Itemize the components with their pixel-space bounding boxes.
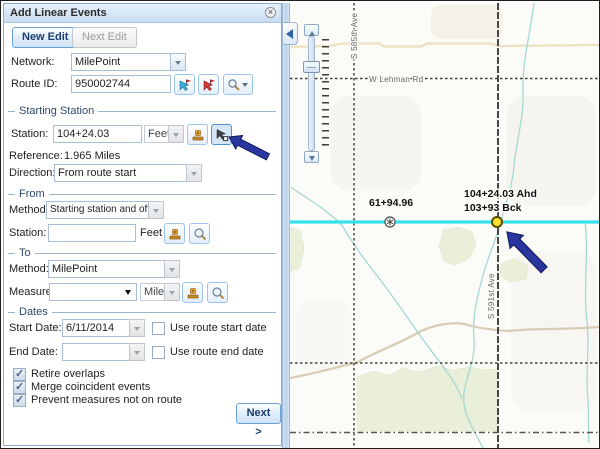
network-dropdown-trigger[interactable] [170, 53, 186, 71]
to-method-trigger[interactable] [164, 260, 180, 278]
select-route-icon [178, 78, 192, 92]
collapse-panel-tab[interactable] [283, 22, 298, 45]
from-method-label: Method: [9, 204, 49, 216]
from-search-icon [193, 227, 207, 241]
from-station-locator-icon [168, 227, 182, 241]
use-route-start-checkbox[interactable] [152, 322, 165, 335]
from-method-trigger[interactable] [148, 201, 164, 219]
edit-buttons-row: New Edit Next Edit [4, 27, 281, 49]
start-date-input[interactable]: 6/11/2014 [62, 319, 130, 337]
reference-label: Reference: [9, 150, 63, 162]
to-method-label: Method: [9, 263, 49, 275]
measure-locator-button[interactable] [182, 282, 203, 303]
end-date-input[interactable] [62, 343, 130, 361]
use-route-end-label: Use route end date [170, 346, 264, 358]
panel-splitter[interactable] [282, 3, 290, 448]
map-canvas: S 585th Ave W Lehman Rd S 591st Ave 61+9… [290, 3, 599, 448]
station-locator-button[interactable] [187, 124, 208, 145]
route-search-button[interactable] [223, 74, 253, 95]
zoom-slider-track[interactable] [308, 36, 315, 151]
from-method-row: Method: Starting station and offset [4, 201, 281, 221]
direction-dropdown-trigger[interactable] [186, 164, 202, 182]
terrain-patches [296, 5, 597, 411]
end-date-label: End Date: [9, 346, 58, 358]
screenshot-frame: Add Linear Events × New Edit Next Edit N… [0, 0, 600, 449]
direction-row: Direction: From route start [4, 164, 281, 184]
road-v2-label: S 591st Ave [487, 273, 496, 319]
pick-station-on-map-button[interactable] [211, 124, 232, 145]
map-viewport[interactable]: S 585th Ave W Lehman Rd S 591st Ave 61+9… [290, 3, 599, 448]
end-date-trigger[interactable] [129, 343, 145, 361]
zoom-out-button[interactable] [304, 151, 319, 163]
panel-title: Add Linear Events [10, 7, 107, 19]
vegetation-large [357, 366, 497, 431]
measure-units-select[interactable]: Miles [140, 283, 165, 301]
clear-route-button[interactable] [198, 74, 219, 95]
start-date-row: Start Date: 6/11/2014 Use route start da… [4, 319, 281, 339]
measure-caret-icon[interactable] [125, 290, 131, 298]
selected-point-label-line2: 103+93 Bck [464, 202, 522, 214]
from-station-input[interactable] [48, 224, 136, 242]
start-date-trigger[interactable] [129, 319, 145, 337]
vegetation-edge [291, 227, 304, 272]
end-date-row: End Date: Use route end date [4, 343, 281, 363]
new-edit-button[interactable]: New Edit [12, 27, 78, 48]
use-route-start-label: Use route start date [170, 322, 267, 334]
station-units-trigger[interactable] [168, 125, 184, 143]
add-linear-events-panel: Add Linear Events × New Edit Next Edit N… [3, 3, 282, 446]
option-row: Retire overlaps [4, 368, 281, 382]
retire-overlaps-label: Retire overlaps [31, 368, 105, 380]
selected-station-point[interactable] [492, 217, 502, 227]
direction-label: Direction: [9, 167, 55, 179]
station-marker-label: 61+94.96 [369, 197, 413, 209]
reference-value: 1.965 Miles [64, 150, 120, 162]
selected-point-label-line1: 104+24.03 Ahd [464, 188, 537, 200]
select-route-button[interactable] [174, 74, 195, 95]
network-row: Network: MilePoint [4, 53, 281, 73]
zoom-slider-thumb[interactable] [303, 61, 320, 73]
route-id-input[interactable]: 950002744 [71, 75, 171, 93]
measure-label: Measure: [9, 286, 55, 298]
merge-coincident-label: Merge coincident events [31, 381, 150, 393]
section-starting-station: Starting Station [8, 105, 276, 117]
network-select[interactable]: MilePoint [71, 53, 171, 71]
from-station-search-button[interactable] [189, 223, 210, 244]
station-label: Station: [11, 128, 48, 140]
measure-locator-icon [186, 286, 200, 300]
section-dates: Dates [8, 306, 276, 318]
road-h1-label: W Lehman Rd [369, 75, 423, 84]
pick-station-icon [215, 128, 229, 142]
measure-search-icon [211, 286, 225, 300]
section-from: From [8, 188, 276, 200]
close-icon[interactable]: × [265, 7, 276, 18]
station-marker [385, 217, 395, 227]
prevent-measures-label: Prevent measures not on route [31, 394, 182, 406]
next-button[interactable]: Next > [236, 403, 281, 424]
reference-row: Reference: 1.965 Miles [4, 150, 281, 164]
to-method-select[interactable]: MilePoint [48, 260, 165, 278]
vegetation-blob [439, 227, 476, 265]
search-icon [227, 78, 249, 92]
to-method-row: Method: MilePoint [4, 260, 281, 280]
from-station-label: Station: [9, 227, 46, 239]
zoom-in-button[interactable] [304, 24, 319, 36]
road-v1-label: S 585th Ave [350, 12, 359, 59]
station-units-select[interactable]: Feet [144, 125, 169, 143]
station-input[interactable]: 104+24.03 [53, 125, 142, 143]
route-id-label: Route ID: [11, 78, 57, 90]
next-edit-button: Next Edit [72, 27, 137, 48]
measure-units-trigger[interactable] [164, 283, 180, 301]
zoom-slider-ticks [322, 39, 329, 151]
use-route-end-checkbox[interactable] [152, 346, 165, 359]
network-label: Network: [11, 56, 54, 68]
measure-search-button[interactable] [207, 282, 228, 303]
cream-road [291, 44, 599, 48]
panel-titlebar[interactable]: Add Linear Events × [4, 4, 281, 23]
starting-station-row: Station: 104+24.03 Feet [4, 125, 281, 145]
from-station-units: Feet [140, 227, 162, 239]
start-date-label: Start Date: [9, 322, 62, 334]
clear-route-icon [202, 78, 216, 92]
from-station-row: Station: Feet [4, 224, 281, 244]
station-locator-icon [191, 128, 205, 142]
direction-select[interactable]: From route start [54, 164, 187, 182]
section-to: To [8, 247, 276, 259]
from-method-select[interactable]: Starting station and offset [46, 201, 149, 219]
measure-row: Measure: Miles [4, 283, 281, 303]
route-id-row: Route ID: 950002744 [4, 75, 281, 95]
option-row: Merge coincident events [4, 381, 281, 395]
from-station-locator-button[interactable] [164, 223, 185, 244]
measure-combo[interactable] [49, 283, 137, 301]
prevent-measures-checkbox[interactable] [13, 394, 26, 407]
